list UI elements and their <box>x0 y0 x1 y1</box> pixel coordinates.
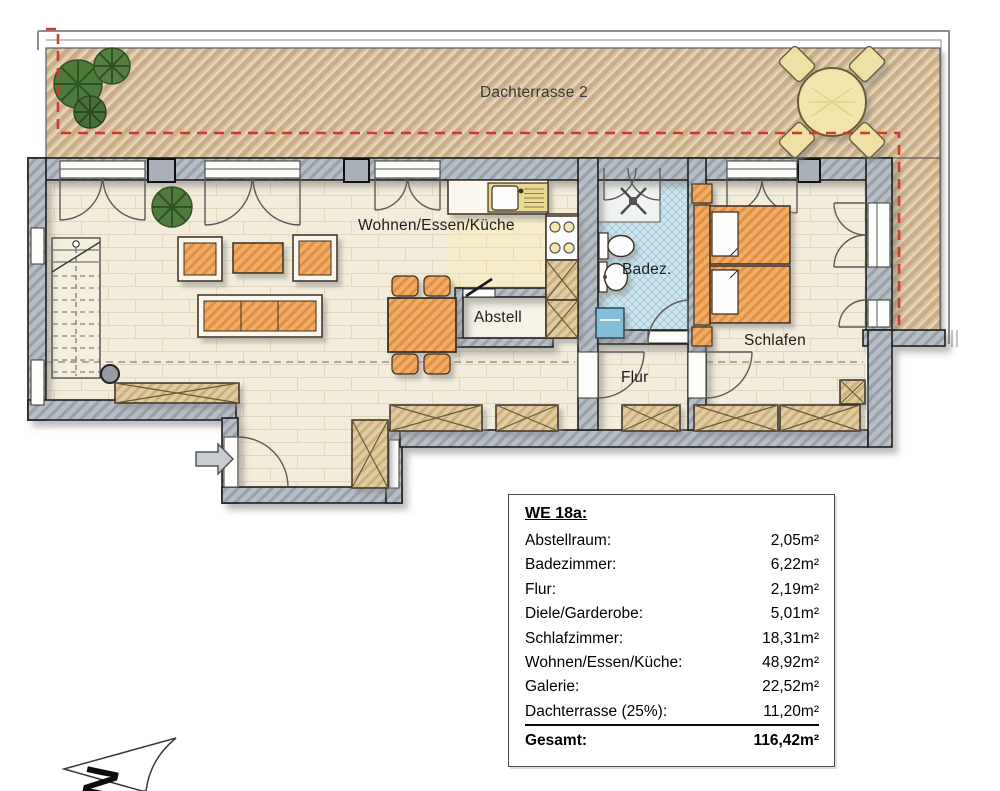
row-value: 6,22m² <box>771 553 819 577</box>
table-row: Wohnen/Essen/Küche: 48,92m² <box>525 651 819 675</box>
total-label: Gesamt: <box>525 729 587 753</box>
row-label: Dachterrasse (25%): <box>525 700 667 724</box>
sofa-icon <box>198 295 322 337</box>
table-row: Abstellraum: 2,05m² <box>525 529 819 553</box>
row-label: Abstellraum: <box>525 529 611 553</box>
washing-machine-icon <box>596 308 624 338</box>
room-label-hall: Flur <box>621 369 649 387</box>
table-row: Diele/Garderobe: 5,01m² <box>525 602 819 626</box>
area-table: WE 18a: Abstellraum: 2,05m² Badezimmer: … <box>508 494 835 767</box>
kitchen-cabinet-icon <box>546 260 578 338</box>
row-value: 48,92m² <box>762 651 819 675</box>
toilet-icon <box>599 233 634 259</box>
floor-plan-page: N Dachterrasse 2 Wohnen/Essen/Küche Bade… <box>0 0 1000 791</box>
north-arrow-icon: N <box>64 738 176 791</box>
table-row: Schlafzimmer: 18,31m² <box>525 627 819 651</box>
room-label-storage: Abstell <box>474 309 522 327</box>
area-table-title: WE 18a: <box>525 505 819 523</box>
row-label: Badezimmer: <box>525 553 616 577</box>
row-value: 2,19m² <box>771 578 819 602</box>
row-value: 11,20m² <box>763 700 819 724</box>
table-total-row: Gesamt: 116,42m² <box>525 726 819 753</box>
row-value: 22,52m² <box>762 675 819 699</box>
table-row: Dachterrasse (25%): 11,20m² <box>525 700 819 726</box>
row-label: Schlafzimmer: <box>525 627 623 651</box>
table-row: Badezimmer: 6,22m² <box>525 553 819 577</box>
table-row: Galerie: 22,52m² <box>525 675 819 699</box>
floor-plan-canvas: N <box>0 0 1000 791</box>
row-value: 18,31m² <box>762 627 819 651</box>
total-value: 116,42m² <box>754 729 820 753</box>
room-label-living: Wohnen/Essen/Küche <box>358 217 515 235</box>
armchair-icon <box>293 235 337 281</box>
row-label: Galerie: <box>525 675 579 699</box>
row-label: Flur: <box>525 578 556 602</box>
row-value: 5,01m² <box>771 602 819 626</box>
room-label-bath: Badez. <box>622 261 671 279</box>
terrace-label: Dachterrasse 2 <box>480 84 588 102</box>
table-row: Flur: 2,19m² <box>525 578 819 602</box>
armchair-icon <box>178 237 222 281</box>
row-label: Diele/Garderobe: <box>525 602 643 626</box>
row-value: 2,05m² <box>771 529 819 553</box>
stove-icon <box>546 216 578 260</box>
coffee-table-icon <box>233 243 283 273</box>
column <box>101 365 119 383</box>
row-label: Wohnen/Essen/Küche: <box>525 651 682 675</box>
room-label-bedroom: Schlafen <box>744 332 806 350</box>
